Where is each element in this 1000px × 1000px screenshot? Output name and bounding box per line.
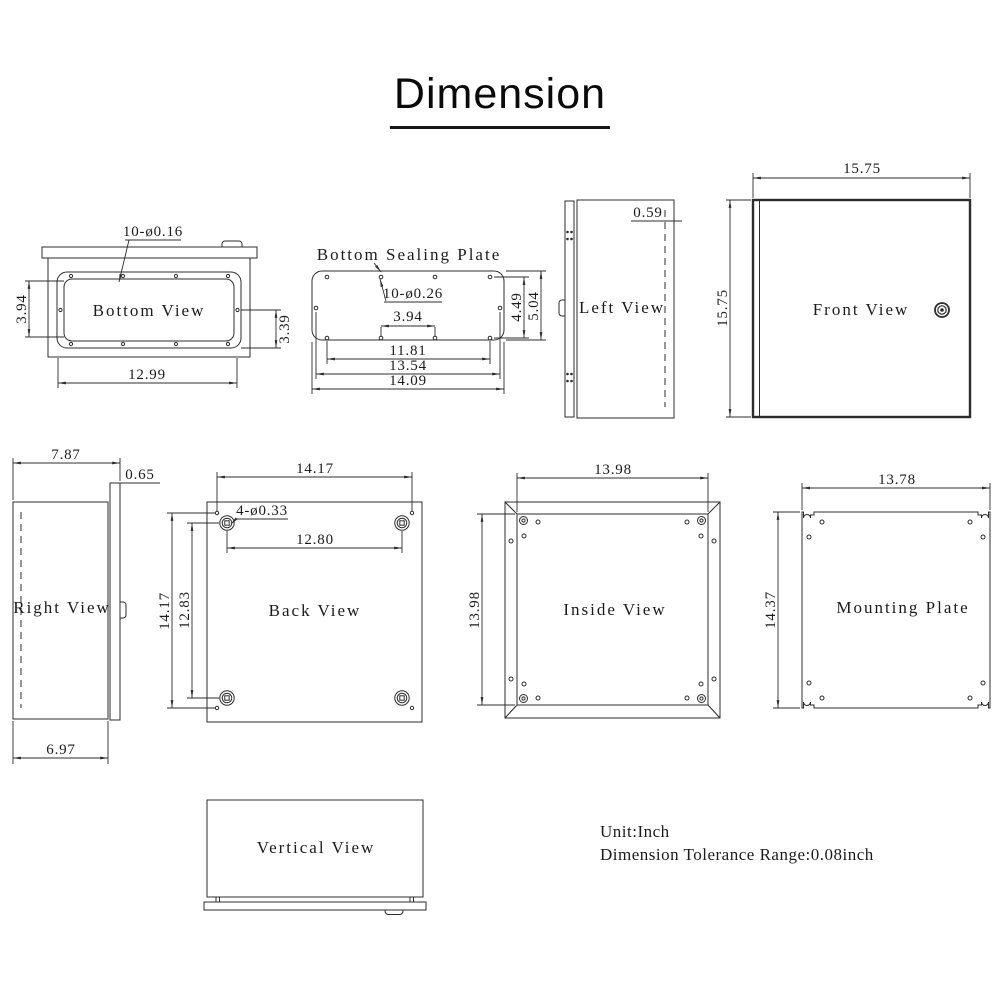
- inside-view-dimensions: 13.98 13.98: [467, 462, 708, 705]
- bottom-sealing-plate-view: Bottom Sealing Plate 10-ø0.26 3.94 11.81: [312, 245, 546, 394]
- dim-arrow: [482, 358, 490, 361]
- dim-boss-height: 12.83: [177, 591, 193, 629]
- hinge-dots: [566, 231, 573, 383]
- dim-hole-span: 11.81: [389, 343, 426, 359]
- latch-bump: [385, 910, 403, 915]
- dim-door-depth: 0.65: [125, 467, 154, 483]
- dim-arrow: [191, 690, 194, 698]
- strip-connectors: [216, 897, 414, 902]
- dim-arrow: [523, 330, 526, 338]
- dim-inside-width: 13.98: [594, 462, 632, 478]
- dim-arrow: [100, 757, 108, 760]
- dim-door-offset: 0.59: [633, 205, 662, 221]
- vertical-view: Vertical View: [204, 800, 426, 915]
- sealing-plate-outline: [312, 271, 504, 340]
- dim-hole-height: 4.49: [509, 292, 525, 321]
- lock-icon: [935, 303, 949, 317]
- dim-body-depth: 6.97: [46, 742, 75, 758]
- back-view-label: Back View: [269, 601, 362, 620]
- dim-flange-height: 3.39: [277, 314, 293, 343]
- dim-arrow: [802, 487, 810, 490]
- latch-bump: [120, 602, 126, 618]
- dim-bottom-width: 12.99: [128, 367, 166, 383]
- dim-arrow: [227, 547, 235, 550]
- dim-arrow: [380, 279, 383, 287]
- dim-arrow: [381, 325, 389, 328]
- dim-arrow: [171, 700, 174, 708]
- dim-arrow: [275, 310, 278, 318]
- dim-arrow: [492, 373, 500, 376]
- inside-view: Inside View 13.98 13.98: [467, 462, 720, 718]
- dim-arrow: [119, 274, 122, 282]
- dim-arrow: [777, 700, 780, 708]
- sealing-plate-label: Bottom Sealing Plate: [317, 245, 502, 264]
- dim-arrow: [496, 388, 504, 391]
- mounting-plate-view: Mounting Plate 13.78 14.37: [763, 472, 990, 708]
- dim-arrow: [700, 477, 708, 480]
- dim-front-height: 15.75: [715, 289, 731, 327]
- bottom-view-door-edge: [42, 247, 257, 258]
- dim-arrow: [229, 382, 237, 385]
- dim-arrow: [729, 409, 732, 417]
- dim-plate-width: 13.78: [878, 472, 916, 488]
- dim-arrow: [753, 177, 761, 180]
- left-view-hinge-strip: [565, 201, 574, 417]
- dim-arrow: [777, 512, 780, 520]
- dim-arrow: [171, 513, 174, 521]
- dim-arrow: [28, 281, 31, 289]
- dim-arrow: [28, 329, 31, 337]
- dim-plate-width: 14.09: [389, 373, 427, 389]
- dim-arrow: [327, 358, 335, 361]
- dim-arrow: [540, 271, 543, 279]
- dim-plate-height: 5.04: [526, 291, 542, 320]
- dim-mount-width: 14.17: [296, 461, 334, 477]
- dim-arrow: [517, 477, 525, 480]
- back-view: 4-ø0.33 Back View 14.17 12.80 14.17 12.8…: [157, 461, 422, 722]
- vertical-view-door-strip: [204, 902, 426, 910]
- dim-arrow: [523, 277, 526, 285]
- latch-bump: [559, 300, 565, 316]
- dim-arrow: [481, 697, 484, 705]
- left-view-label: Left View: [579, 298, 665, 317]
- dimension-drawing: Dimension Bottom View 10-ø0.16 3: [0, 0, 1000, 1000]
- bottom-view: Bottom View 10-ø0.16 3.94 3.39 12.99: [14, 224, 293, 388]
- dim-arrow: [191, 523, 194, 531]
- mounting-plate-dimensions: 13.78 14.37: [763, 472, 990, 708]
- dim-arrow: [481, 514, 484, 522]
- drawing-notes: Unit:Inch Dimension Tolerance Range:0.08…: [600, 820, 874, 866]
- left-view: 0.59 Left View: [559, 200, 682, 418]
- dim-arrow: [394, 547, 402, 550]
- back-view-dimensions: 14.17 12.80 14.17 12.83: [157, 461, 412, 708]
- right-view-label: Right View: [13, 598, 111, 617]
- right-view-door-strip: [110, 483, 120, 720]
- dim-center-holes: 3.94: [393, 309, 422, 325]
- dim-inside-height: 13.98: [467, 591, 483, 629]
- sealing-plate-hole-note: 10-ø0.26: [383, 286, 443, 302]
- sealing-plate-holes: [314, 275, 502, 340]
- bottom-view-hole-note: 10-ø0.16: [123, 224, 183, 240]
- dim-arrow: [427, 325, 435, 328]
- unit-note: Unit:Inch: [600, 820, 874, 843]
- tolerance-note: Dimension Tolerance Range:0.08inch: [600, 843, 874, 866]
- dim-arrow: [316, 373, 324, 376]
- front-view-label: Front View: [813, 300, 910, 319]
- dim-plate-height: 14.37: [763, 591, 779, 629]
- dim-arrow: [217, 476, 225, 479]
- dim-arrow: [13, 462, 21, 465]
- dim-arrow: [962, 177, 970, 180]
- dim-mount-height: 14.17: [157, 592, 173, 630]
- dim-arrow: [312, 388, 320, 391]
- dim-arrow: [404, 476, 412, 479]
- latch-bump: [222, 241, 242, 247]
- dim-front-width: 15.75: [843, 161, 881, 177]
- bottom-view-label: Bottom View: [93, 301, 206, 320]
- dim-side-hole-span: 13.54: [389, 358, 427, 374]
- inside-view-label: Inside View: [563, 600, 666, 619]
- back-view-hole-note: 4-ø0.33: [236, 503, 288, 519]
- dim-arrow: [112, 462, 120, 465]
- dim-arrow: [540, 332, 543, 340]
- dim-boss-width: 12.80: [296, 532, 334, 548]
- right-view: Right View 7.87 0.65 6.97: [13, 447, 160, 764]
- dim-depth-total: 7.87: [51, 447, 80, 463]
- dim-arrow: [13, 757, 21, 760]
- vertical-view-label: Vertical View: [257, 838, 376, 857]
- dim-arrow: [729, 200, 732, 208]
- dim-arrow: [982, 487, 990, 490]
- bottom-view-dimensions: 3.94 3.39 12.99: [14, 281, 293, 388]
- dim-inner-height: 3.94: [14, 294, 30, 323]
- dim-arrow: [58, 382, 66, 385]
- mounting-plate-label: Mounting Plate: [836, 598, 969, 617]
- front-view: Front View 15.75 15.75: [715, 161, 970, 417]
